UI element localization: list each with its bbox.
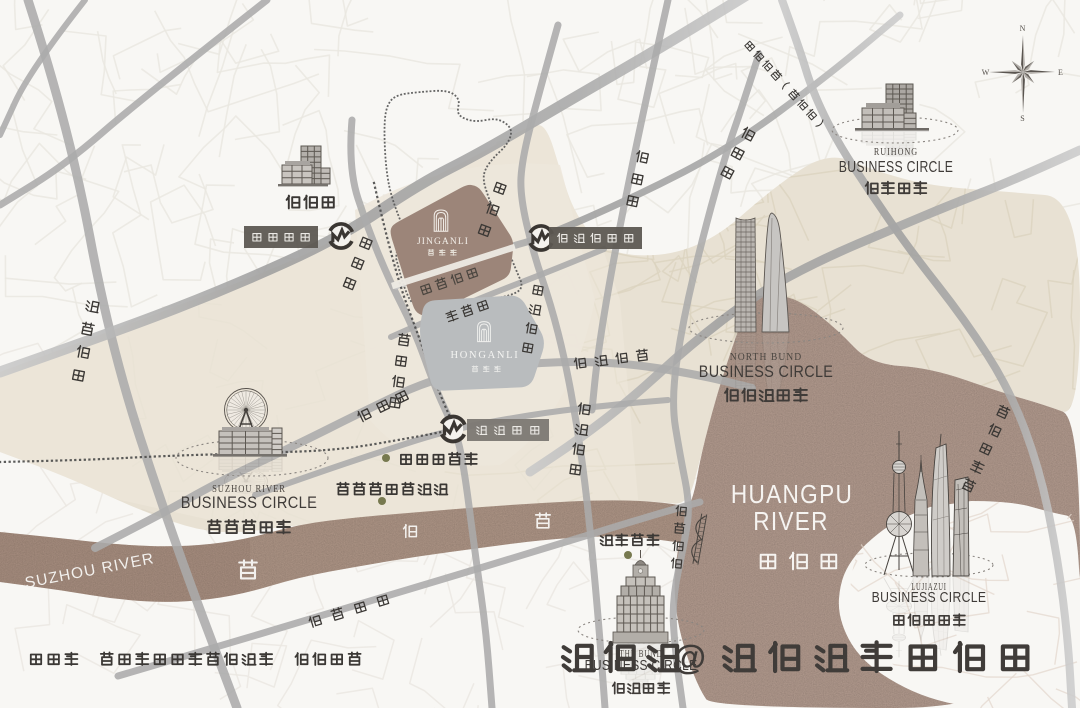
svg-text:NORTH BUND: NORTH BUND: [730, 351, 803, 363]
svg-text:JINGANLI: JINGANLI: [417, 237, 469, 247]
svg-text:BUSINESS CIRCLE: BUSINESS CIRCLE: [839, 159, 953, 177]
svg-text:E: E: [1058, 68, 1064, 77]
svg-text:RIVER: RIVER: [753, 508, 829, 537]
svg-text:W: W: [982, 68, 991, 77]
svg-text:S: S: [1020, 114, 1025, 123]
svg-text:BUSINESS CIRCLE: BUSINESS CIRCLE: [181, 494, 317, 512]
svg-text:HUANGPU: HUANGPU: [731, 481, 853, 510]
svg-text:N: N: [1020, 24, 1027, 33]
svg-text:BUSINESS CIRCLE: BUSINESS CIRCLE: [872, 589, 987, 605]
svg-text:RUIHONG: RUIHONG: [874, 146, 918, 157]
svg-text:@: @: [673, 639, 707, 677]
svg-text:BUSINESS CIRCLE: BUSINESS CIRCLE: [699, 363, 833, 381]
svg-text:HONGANLI: HONGANLI: [450, 350, 519, 361]
